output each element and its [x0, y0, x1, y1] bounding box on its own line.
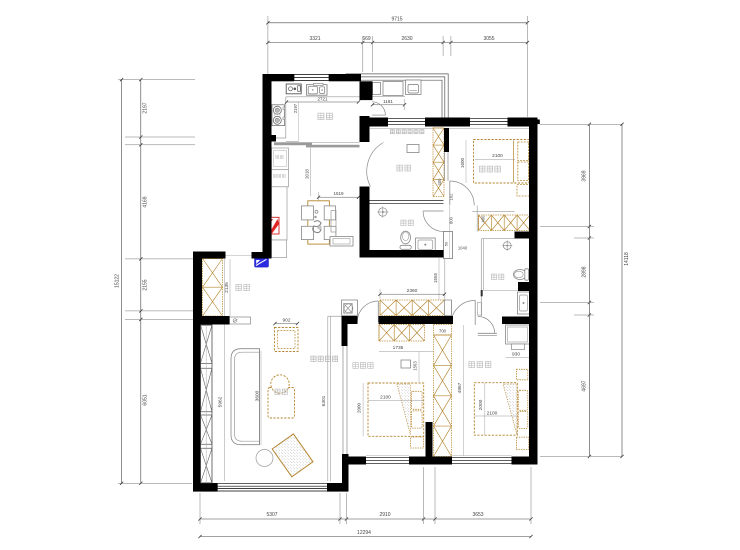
svg-text:2910: 2910: [379, 512, 390, 518]
svg-text:4967: 4967: [457, 382, 463, 393]
svg-text:3653: 3653: [472, 512, 483, 518]
svg-text:2898: 2898: [582, 266, 588, 277]
svg-text:2100: 2100: [487, 410, 498, 416]
svg-text:669: 669: [362, 36, 371, 42]
svg-text:1040: 1040: [458, 246, 468, 251]
svg-text:400: 400: [481, 215, 486, 223]
svg-text:1735: 1735: [393, 345, 404, 351]
svg-text:9715: 9715: [391, 17, 402, 23]
svg-text:2000: 2000: [356, 402, 361, 413]
svg-text:1181: 1181: [383, 99, 393, 104]
svg-text:6301: 6301: [321, 395, 327, 406]
svg-text:700: 700: [439, 329, 447, 334]
svg-text:5962: 5962: [218, 396, 224, 407]
svg-text:2630: 2630: [401, 36, 412, 42]
svg-text:162: 162: [448, 193, 453, 201]
svg-text:930: 930: [512, 352, 520, 358]
svg-text:12294: 12294: [357, 530, 371, 536]
svg-text:6051: 6051: [143, 394, 149, 405]
svg-text:15122: 15122: [115, 274, 121, 288]
svg-text:4697: 4697: [582, 380, 588, 391]
svg-text:3321: 3321: [309, 36, 320, 42]
svg-text:2360: 2360: [407, 288, 418, 294]
svg-text:1563: 1563: [413, 361, 418, 371]
svg-text:1519: 1519: [333, 191, 344, 196]
svg-text:400: 400: [437, 178, 442, 186]
svg-text:4169: 4169: [143, 196, 149, 207]
svg-text:1600: 1600: [460, 157, 465, 168]
svg-text:2155: 2155: [143, 279, 149, 290]
svg-text:50: 50: [444, 242, 448, 246]
svg-text:902: 902: [282, 318, 290, 324]
svg-text:2197: 2197: [293, 103, 298, 113]
svg-text:2721: 2721: [317, 96, 328, 101]
svg-text:3600: 3600: [255, 390, 261, 401]
svg-text:2100: 2100: [492, 153, 503, 159]
svg-text:1555: 1555: [433, 272, 438, 283]
svg-text:800: 800: [448, 216, 453, 224]
svg-text:2100: 2100: [380, 395, 391, 401]
svg-text:2018: 2018: [304, 169, 309, 179]
svg-text:3969: 3969: [582, 170, 588, 181]
svg-text:5307: 5307: [266, 512, 277, 518]
svg-text:14118: 14118: [624, 252, 630, 266]
svg-text:2197: 2197: [143, 102, 149, 113]
svg-text:2000: 2000: [478, 399, 484, 410]
svg-text:3055: 3055: [483, 36, 494, 42]
svg-text:2135: 2135: [224, 282, 230, 293]
